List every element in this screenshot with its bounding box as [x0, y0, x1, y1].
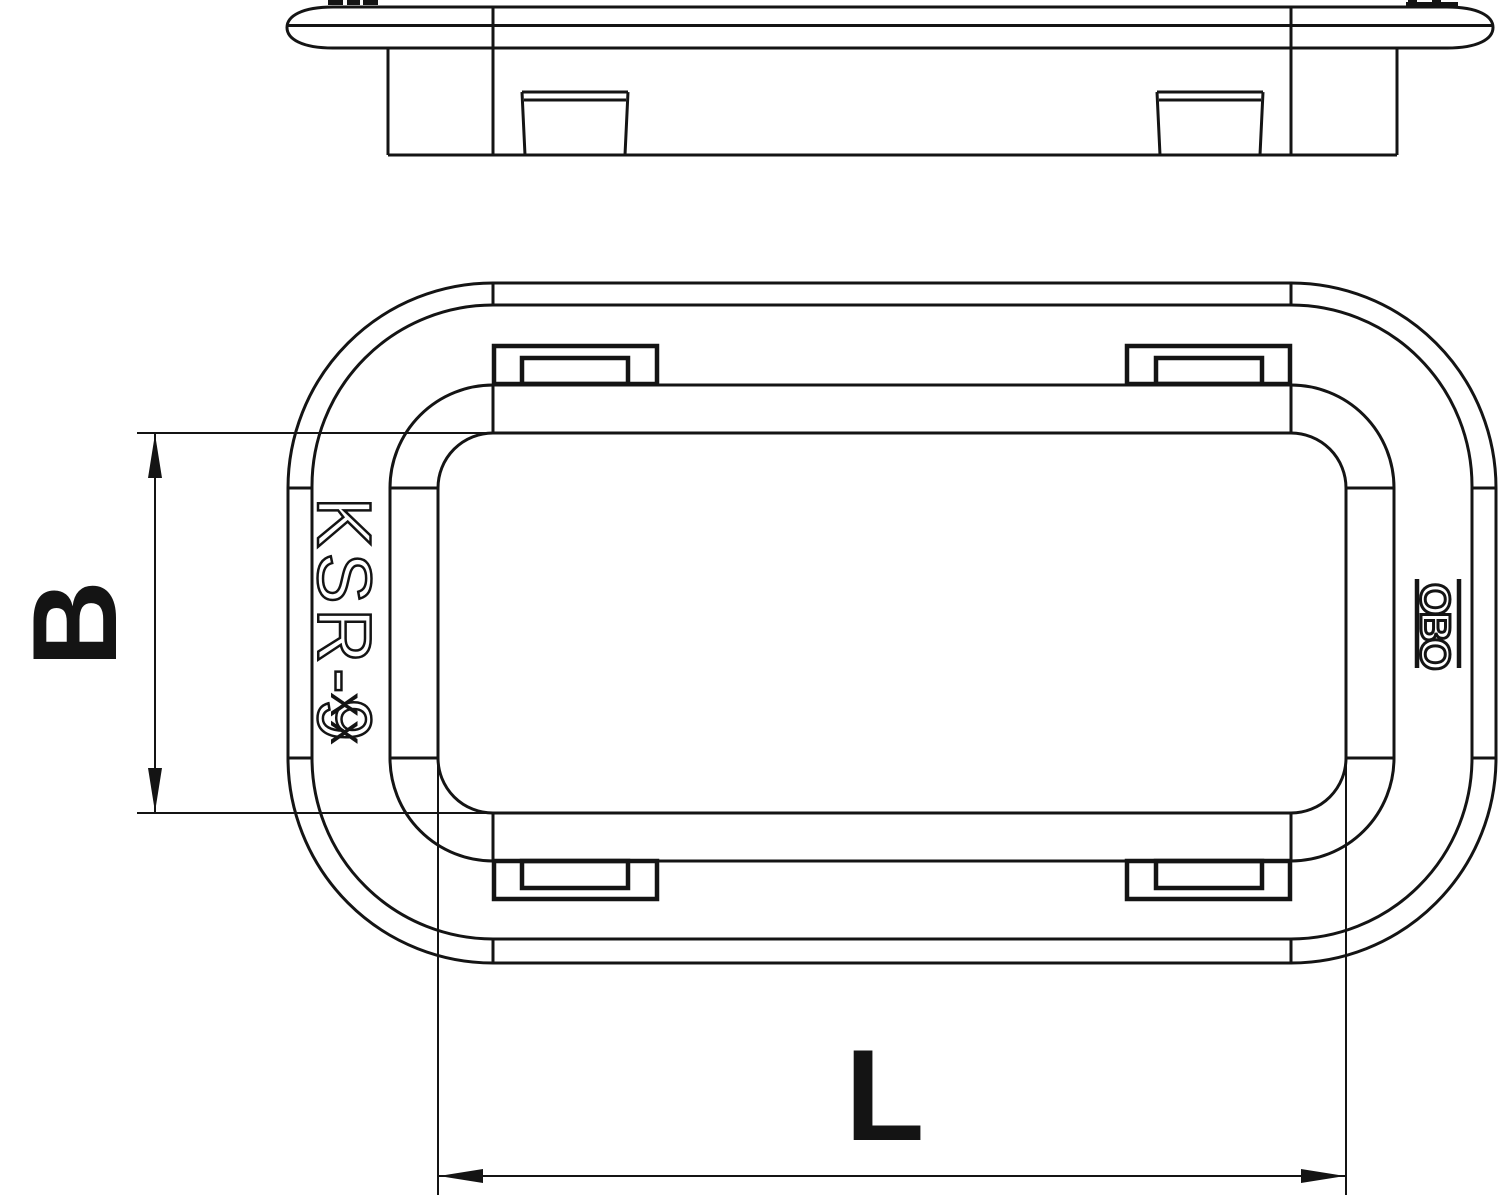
- top-view-collar-outer-edge: [390, 385, 1394, 861]
- top-view-collar-corner-breaks: [390, 385, 1394, 861]
- dimension-b: B: [8, 433, 493, 813]
- dimension-b-label: B: [8, 580, 142, 667]
- brand-logo: OBO: [1412, 579, 1459, 669]
- ksr-grommet-drawing: KSR-9 xx OBO B L: [0, 0, 1500, 1195]
- dimension-l: L: [438, 758, 1346, 1195]
- side-view: [287, 0, 1493, 155]
- top-view: KSR-9 xx OBO: [288, 283, 1496, 963]
- top-view-latch-top-left: [494, 346, 657, 384]
- dimension-b-arrow-top: [148, 434, 162, 478]
- dimension-l-arrow-right: [1301, 1169, 1345, 1183]
- top-view-latch-bottom-right: [1127, 861, 1290, 899]
- part-marking-suffix: xx: [320, 692, 376, 748]
- side-view-tangent-lines: [493, 7, 1291, 155]
- dimension-l-label: L: [845, 1022, 924, 1168]
- top-view-latch-top-right: [1127, 346, 1290, 384]
- side-view-latch-right: [1157, 92, 1263, 155]
- brand-logo-text: OBO: [1412, 583, 1459, 669]
- side-view-flange-outline: [287, 7, 1493, 48]
- technical-drawing-canvas: KSR-9 xx OBO B L: [0, 0, 1500, 1195]
- dimension-b-arrow-bottom: [148, 768, 162, 812]
- side-view-embossed-marking-left: [328, 0, 378, 5]
- top-view-opening-edge: [438, 433, 1346, 813]
- side-view-latch-left: [522, 92, 628, 155]
- side-view-embossed-marking-right: [1406, 0, 1458, 6]
- top-view-latch-bottom-left: [494, 861, 657, 899]
- top-view-flange-inner-edge: [312, 305, 1472, 939]
- dimension-l-arrow-left: [439, 1169, 483, 1183]
